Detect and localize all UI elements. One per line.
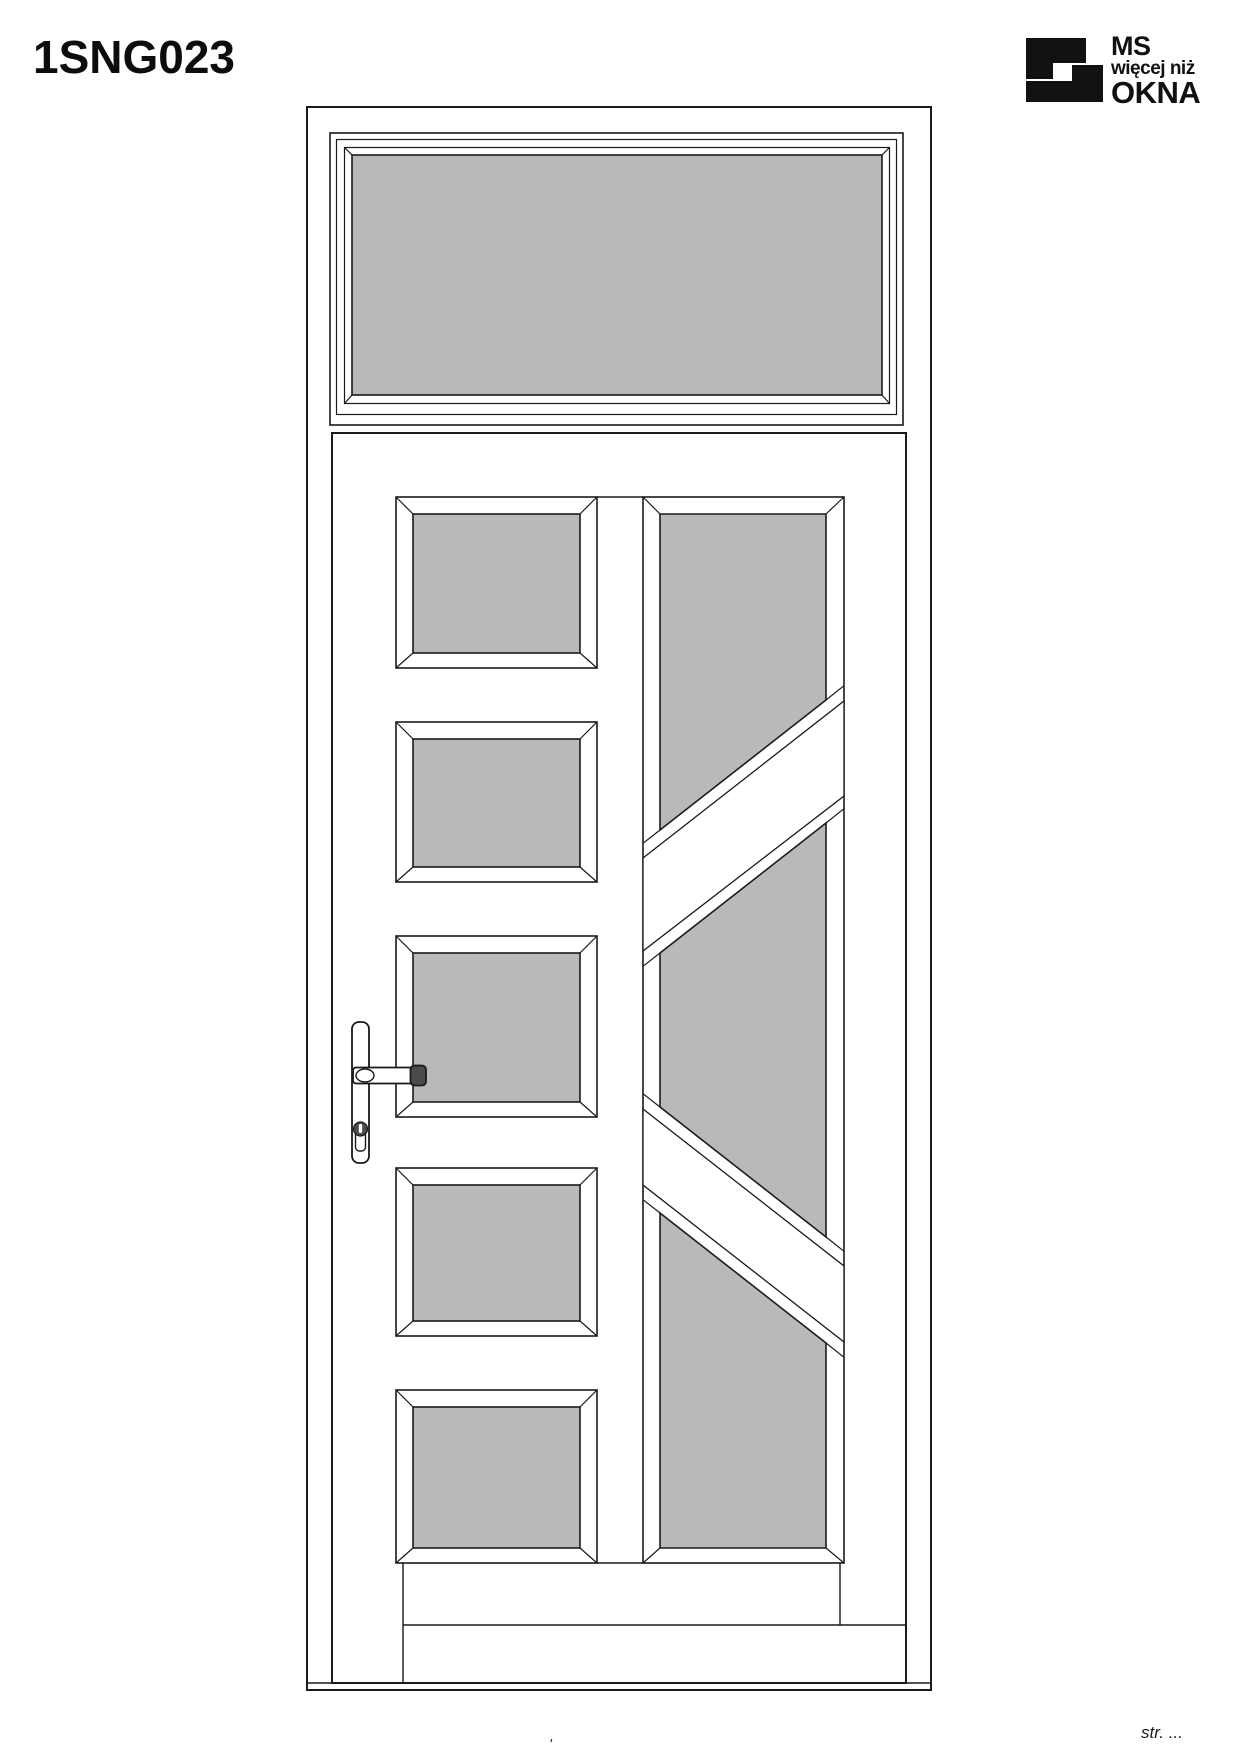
left-pane-3 (396, 936, 597, 1117)
left-pane-2 (396, 722, 597, 882)
transom-window (330, 133, 903, 425)
left-pane-4 (396, 1168, 597, 1336)
door-leaf (307, 433, 931, 1683)
bottom-edge-mark: ' (549, 1736, 552, 1753)
cylinder-slot (359, 1124, 362, 1133)
right-glazing (643, 497, 844, 1563)
left-pane-1 (396, 497, 597, 668)
handle-hub (356, 1069, 374, 1082)
transom-glass (352, 155, 882, 395)
door-drawing (0, 0, 1240, 1755)
handle-grip-end (411, 1066, 427, 1086)
left-pane-5 (396, 1390, 597, 1563)
page-number-label: str. ... (1141, 1723, 1183, 1743)
catalog-page: 1SNG023 MS więcej niż OKNA (0, 0, 1240, 1755)
